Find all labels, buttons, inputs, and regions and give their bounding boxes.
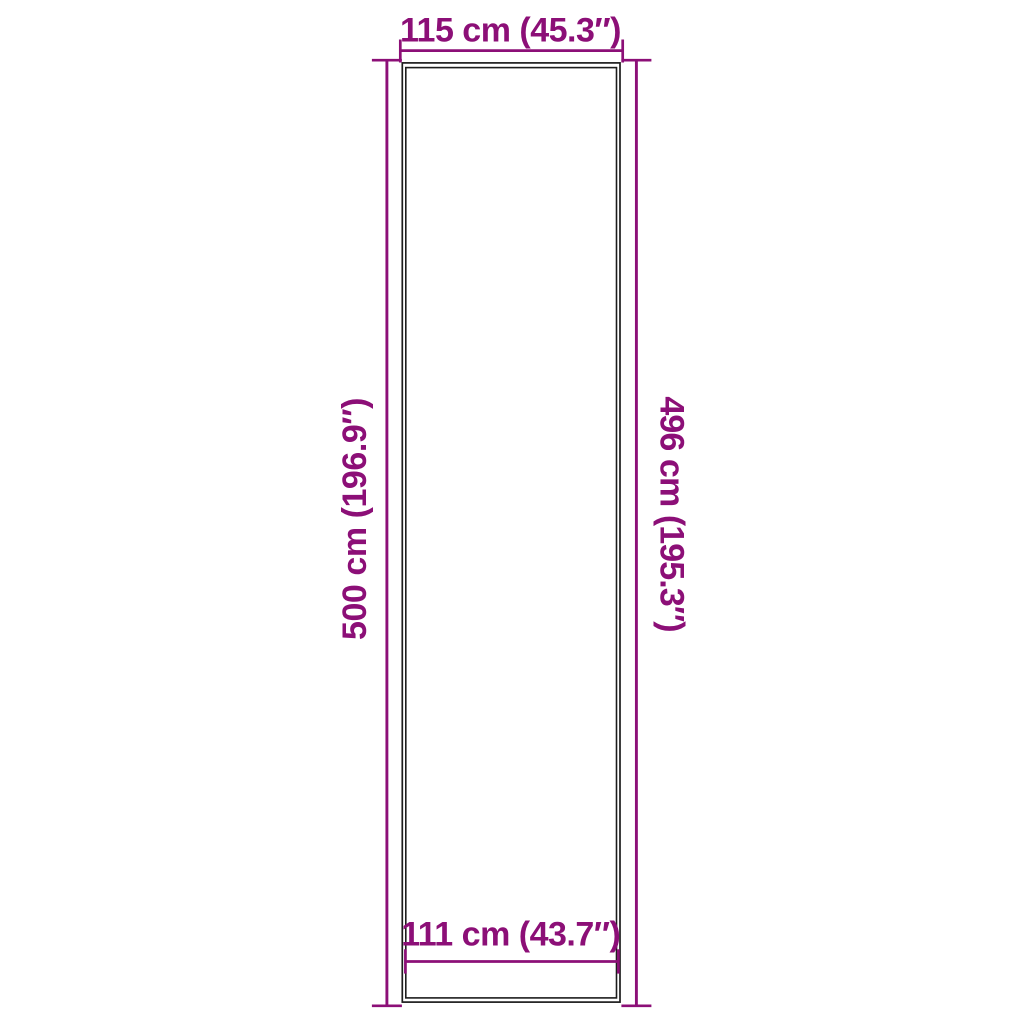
svg-text:496 cm (195.3″): 496 cm (195.3″) — [653, 396, 691, 631]
svg-text:115 cm (45.3″): 115 cm (45.3″) — [400, 12, 621, 50]
svg-text:111 cm (43.7″): 111 cm (43.7″) — [401, 916, 620, 954]
svg-text:500 cm (196.9″): 500 cm (196.9″) — [336, 398, 374, 640]
